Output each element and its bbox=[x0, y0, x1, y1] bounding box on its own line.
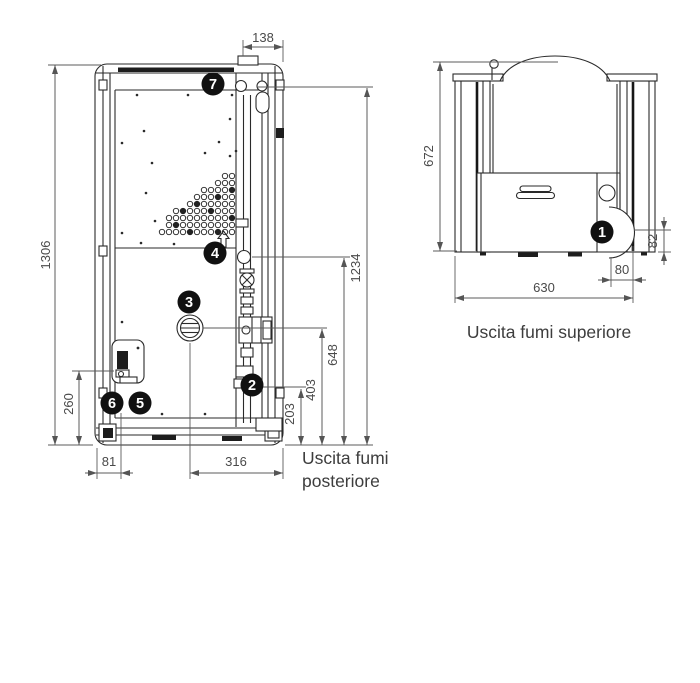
top-flue-outlet bbox=[599, 185, 615, 201]
dim-260-label: 260 bbox=[61, 393, 76, 415]
top-view: 672 82 80 630 Uscita fumi superiore 1 bbox=[421, 56, 671, 342]
dim-630-label: 630 bbox=[533, 280, 555, 295]
callout-5-label: 5 bbox=[136, 396, 144, 412]
door-handle bbox=[520, 186, 551, 192]
callout-3-label: 3 bbox=[185, 295, 193, 311]
return-connection bbox=[238, 251, 251, 264]
expansion-fitting bbox=[256, 92, 269, 113]
dim-403-label: 403 bbox=[303, 379, 318, 401]
dim-203-label: 203 bbox=[282, 403, 297, 425]
callout-4-label: 4 bbox=[211, 246, 219, 262]
dim-138-label: 138 bbox=[252, 30, 274, 45]
top-view-caption: Uscita fumi superiore bbox=[467, 322, 631, 342]
air-intake bbox=[177, 315, 203, 341]
hinge bbox=[276, 80, 284, 90]
dim-316-label: 316 bbox=[225, 454, 247, 469]
rear-view-caption-line2: posteriore bbox=[302, 471, 380, 491]
pump-block bbox=[239, 317, 272, 343]
boiler-body bbox=[477, 173, 597, 252]
legend: 1-Scarico fumi superiore Ø 80mm 2-Uscita… bbox=[0, 530, 700, 683]
hinge bbox=[276, 388, 284, 398]
rear-view-caption-line1: Uscita fumi bbox=[302, 448, 389, 468]
callout-7-label: 7 bbox=[209, 77, 217, 93]
drain-valve-assembly bbox=[112, 340, 144, 383]
dim-80-label: 80 bbox=[615, 262, 629, 277]
top-vent-strip bbox=[118, 68, 234, 73]
dim-672-label: 672 bbox=[421, 145, 436, 167]
hinge bbox=[99, 246, 107, 256]
callout-2-label: 2 bbox=[248, 378, 256, 394]
dim-648-label: 648 bbox=[325, 344, 340, 366]
hinge bbox=[276, 128, 284, 138]
knob bbox=[490, 60, 498, 68]
hinge bbox=[99, 80, 107, 90]
supply-connection bbox=[238, 56, 258, 65]
dim-1306-label: 1306 bbox=[38, 241, 53, 270]
dim-81-label: 81 bbox=[102, 454, 116, 469]
technical-drawing-page: 138 1306 260 81 316 203 403 648 1234 Usc… bbox=[0, 0, 700, 683]
callout-6-label: 6 bbox=[108, 396, 116, 412]
callout-1-label: 1 bbox=[598, 225, 606, 241]
dim-1234-label: 1234 bbox=[348, 254, 363, 283]
curved-front-panel bbox=[500, 56, 610, 81]
rear-view: 138 1306 260 81 316 203 403 648 1234 Usc… bbox=[38, 30, 389, 491]
dim-82-label: 82 bbox=[645, 234, 660, 248]
top-body bbox=[453, 56, 657, 258]
